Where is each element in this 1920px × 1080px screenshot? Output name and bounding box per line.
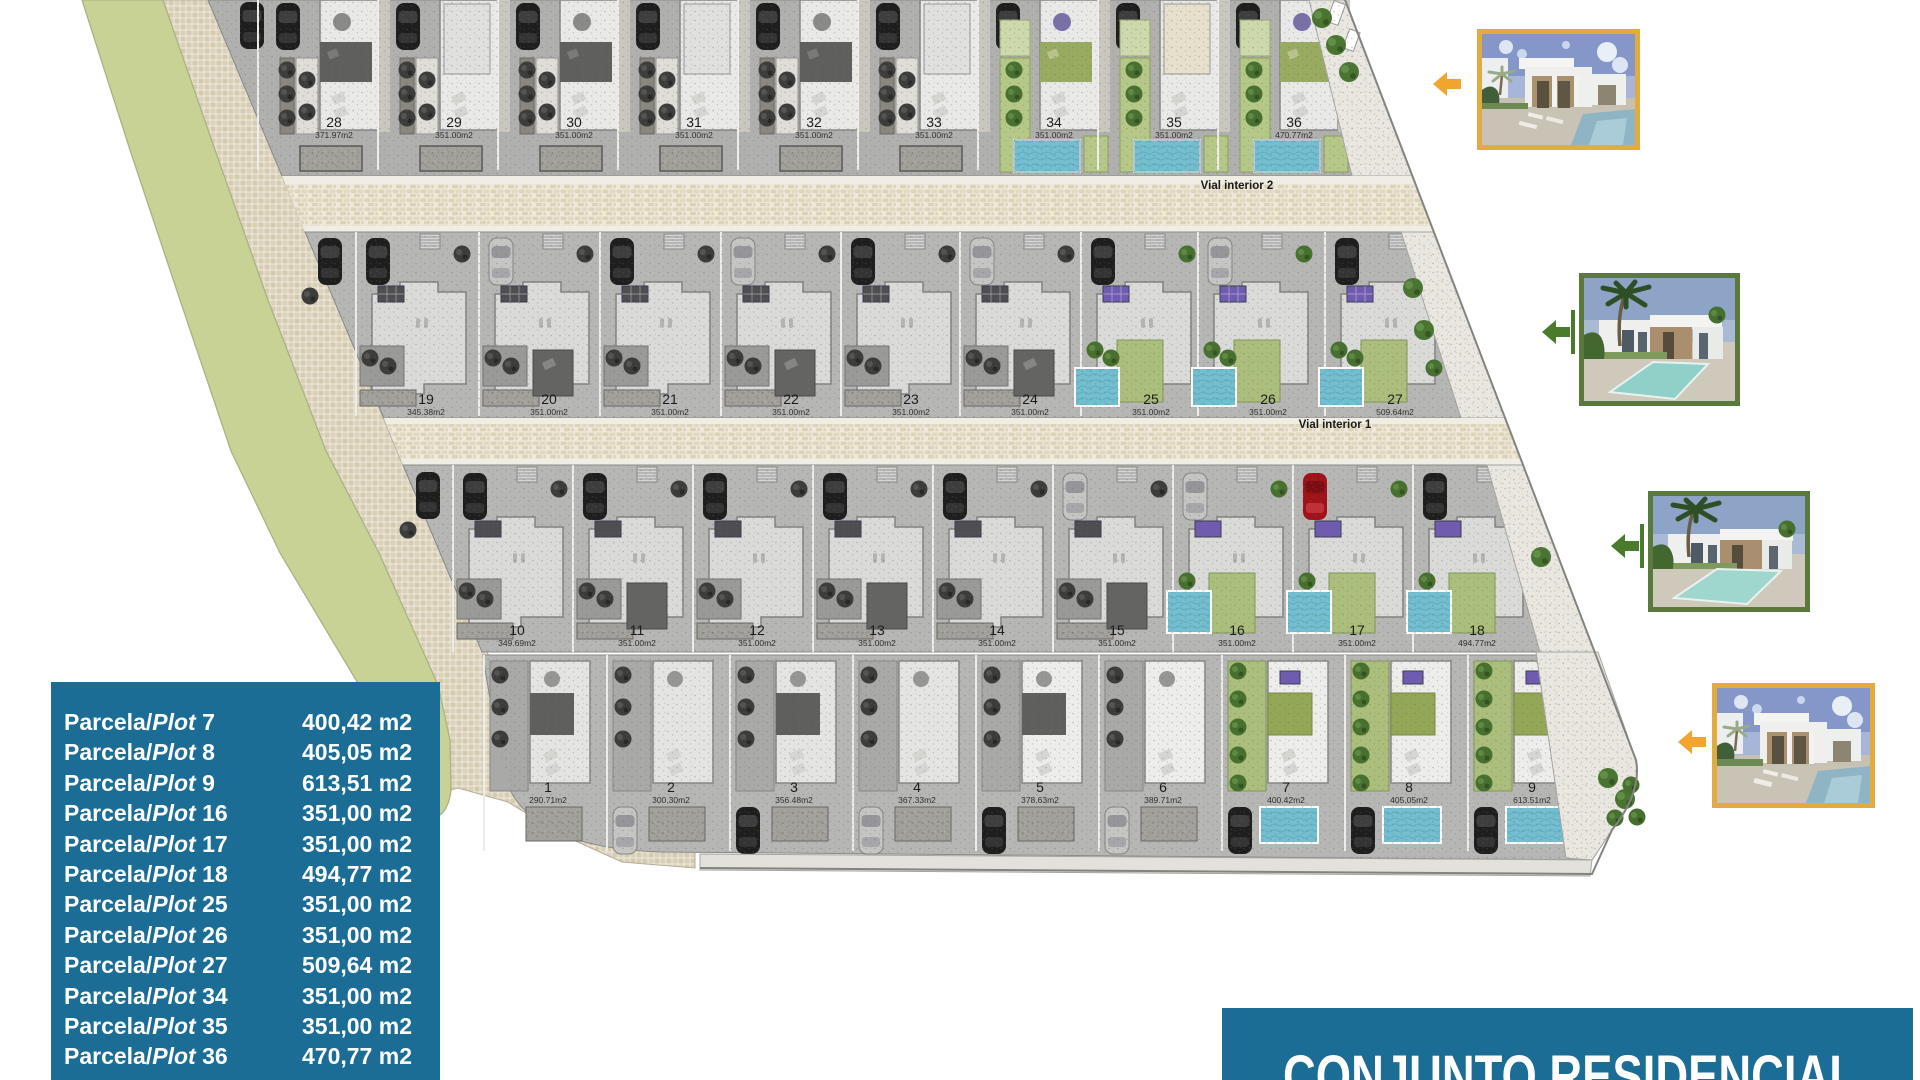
- svg-text:Parcela/Plot 26: Parcela/Plot 26: [64, 922, 228, 948]
- svg-text:351,00 m2: 351,00 m2: [302, 1013, 412, 1039]
- svg-text:351,00 m2: 351,00 m2: [302, 891, 412, 917]
- svg-text:Parcela/Plot 34: Parcela/Plot 34: [64, 983, 228, 1009]
- svg-text:405,05 m2: 405,05 m2: [302, 739, 412, 765]
- svg-text:Parcela/Plot 25: Parcela/Plot 25: [64, 891, 228, 917]
- svg-text:400,42 m2: 400,42 m2: [302, 709, 412, 735]
- svg-text:Parcela/Plot 8: Parcela/Plot 8: [64, 739, 215, 765]
- svg-text:351,00 m2: 351,00 m2: [302, 800, 412, 826]
- svg-text:Parcela/Plot 18: Parcela/Plot 18: [64, 861, 228, 887]
- svg-text:Parcela/Plot 36: Parcela/Plot 36: [64, 1043, 228, 1069]
- svg-text:Parcela/Plot 27: Parcela/Plot 27: [64, 952, 228, 978]
- svg-text:Parcela/Plot 17: Parcela/Plot 17: [64, 831, 228, 857]
- svg-text:CONJUNTO RESIDENCIAL: CONJUNTO RESIDENCIAL: [1283, 1044, 1857, 1080]
- svg-text:Parcela/Plot 35: Parcela/Plot 35: [64, 1013, 228, 1039]
- svg-text:494,77 m2: 494,77 m2: [302, 861, 412, 887]
- svg-text:470,77 m2: 470,77 m2: [302, 1043, 412, 1069]
- svg-text:351,00 m2: 351,00 m2: [302, 831, 412, 857]
- svg-text:Vial interior 2: Vial interior 2: [1201, 180, 1274, 192]
- svg-text:Vial interior 1: Vial interior 1: [1299, 419, 1372, 431]
- svg-text:613,51 m2: 613,51 m2: [302, 770, 412, 796]
- svg-text:509,64 m2: 509,64 m2: [302, 952, 412, 978]
- svg-text:Parcela/Plot 9: Parcela/Plot 9: [64, 770, 215, 796]
- svg-text:351,00 m2: 351,00 m2: [302, 983, 412, 1009]
- svg-text:351,00 m2: 351,00 m2: [302, 922, 412, 948]
- svg-text:Parcela/Plot 7: Parcela/Plot 7: [64, 709, 215, 735]
- svg-text:Parcela/Plot 16: Parcela/Plot 16: [64, 800, 228, 826]
